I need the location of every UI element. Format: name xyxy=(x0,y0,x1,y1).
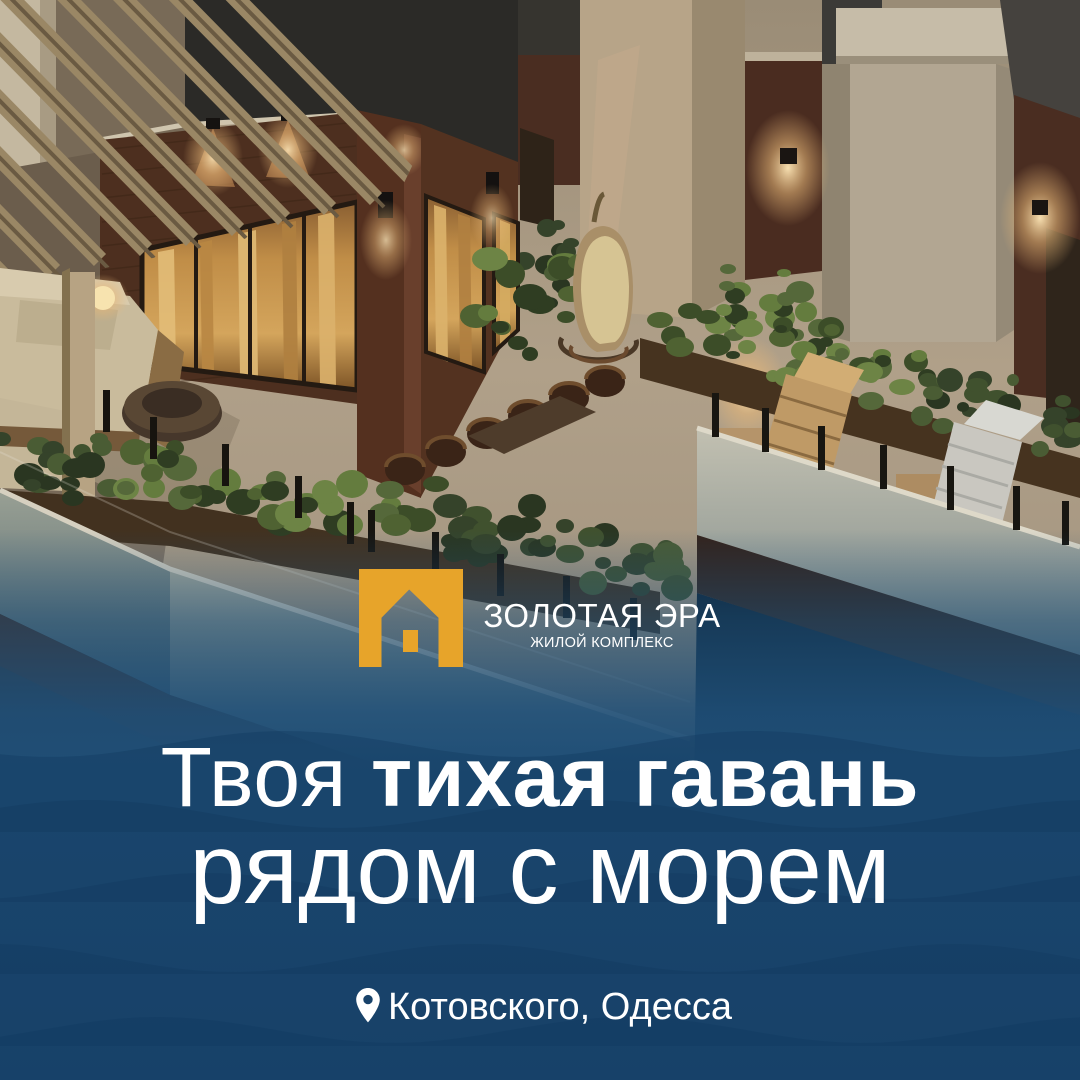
svg-text:рядом с морем: рядом с морем xyxy=(189,813,890,925)
svg-text:ЗОЛОТАЯ ЭРА: ЗОЛОТАЯ ЭРА xyxy=(483,597,720,634)
svg-text:ЖИЛОЙ КОМПЛЕКС: ЖИЛОЙ КОМПЛЕКС xyxy=(530,633,673,651)
svg-text:Котовского, Одесса: Котовского, Одесса xyxy=(388,986,733,1028)
svg-text:Твоя тихая гавань: Твоя тихая гавань xyxy=(161,730,920,824)
